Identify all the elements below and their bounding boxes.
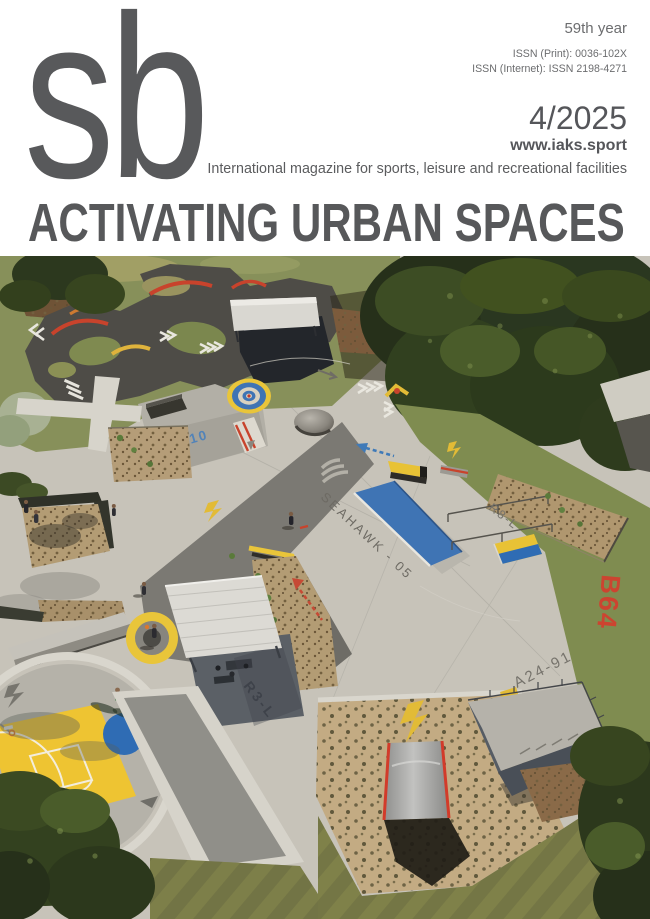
issn-internet: ISSN (Internet): ISSN 2198-4271 xyxy=(472,62,627,77)
bullseye-marking xyxy=(227,379,271,414)
issn-print: ISSN (Print): 0036-102X xyxy=(472,47,627,62)
marking-b64: B64 xyxy=(591,573,626,631)
sb-logo: sb xyxy=(24,0,204,214)
yellow-ring-marking xyxy=(126,612,178,664)
issue-number: 4/2025 xyxy=(529,100,627,137)
person-scooter-upper xyxy=(112,504,116,516)
issn-block: ISSN (Print): 0036-102X ISSN (Internet):… xyxy=(472,47,627,77)
edition-note: 59th year xyxy=(564,20,627,37)
magazine-tagline: International magazine for sports, leisu… xyxy=(207,161,627,177)
cover-photo-skatepark-aerial: A24-10 xyxy=(0,256,650,919)
cover-title: ACTIVATING URBAN SPACES xyxy=(28,192,625,254)
website-url: www.iaks.sport xyxy=(510,137,627,155)
magazine-cover: sb 59th year ISSN (Print): 0036-102X ISS… xyxy=(0,0,650,919)
